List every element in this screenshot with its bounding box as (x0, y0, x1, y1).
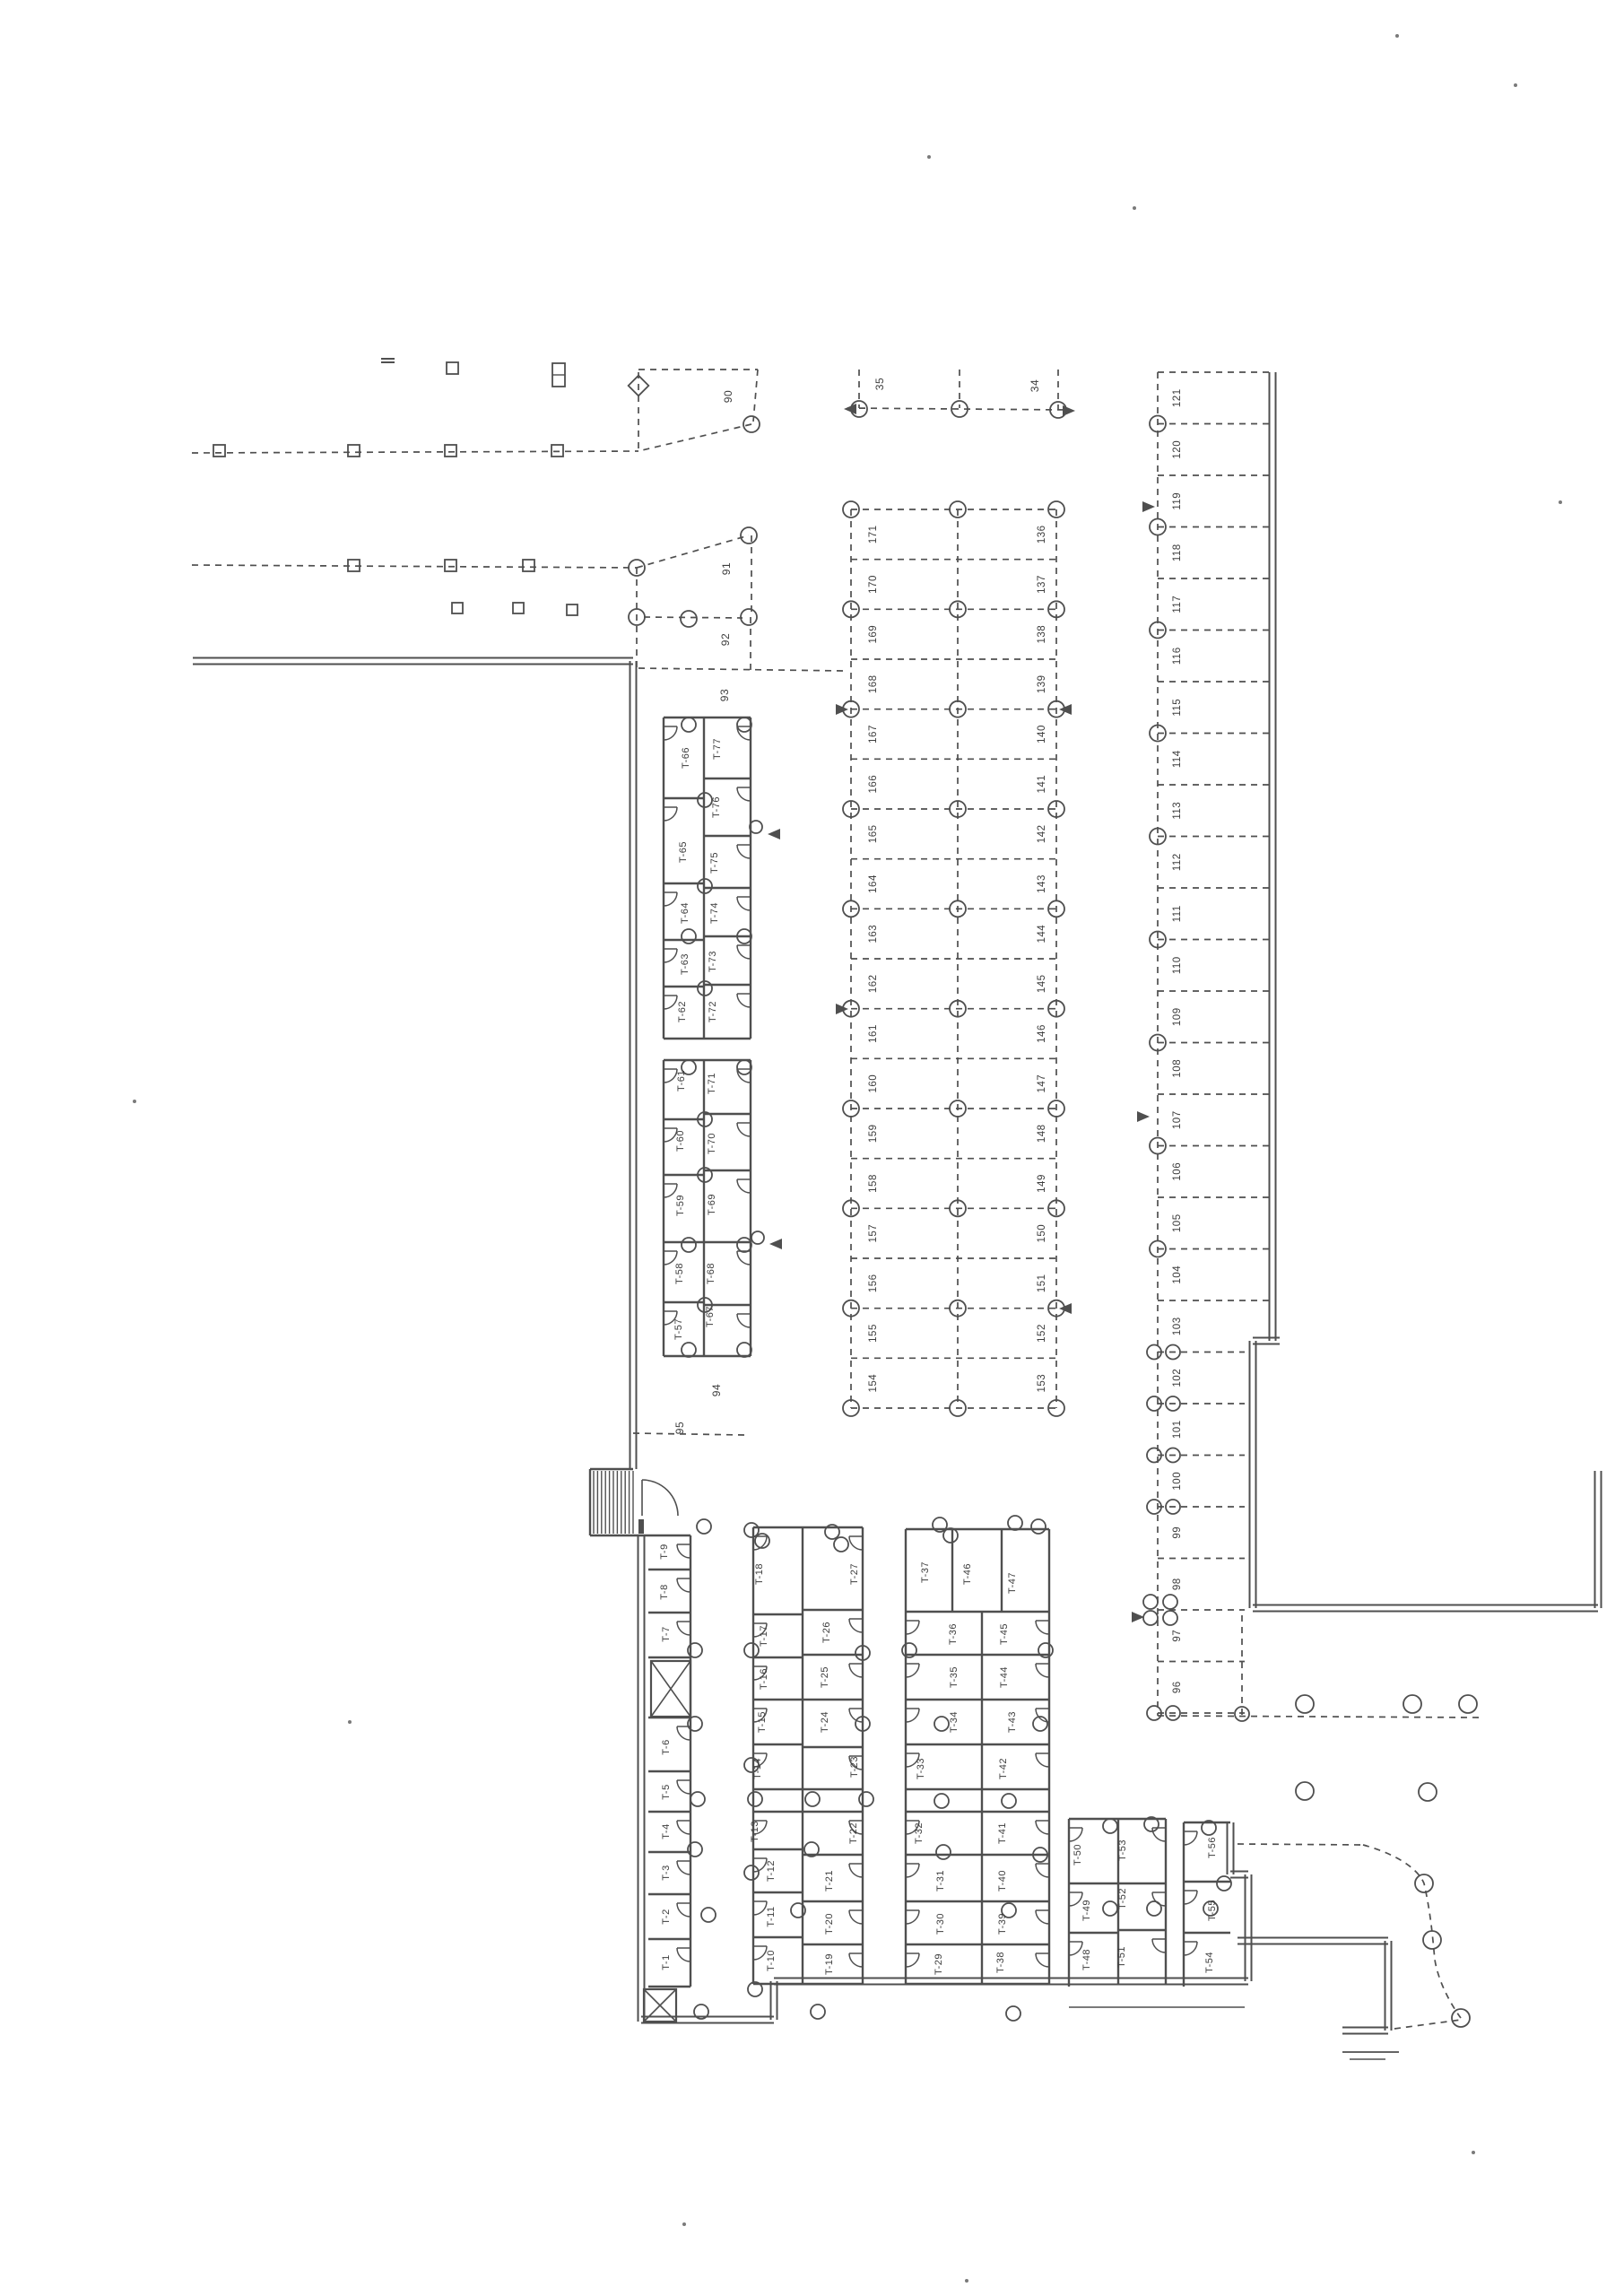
unit-label: T-73 (708, 951, 718, 972)
floor-plan-page: 1711701691681671661651641631621611601591… (0, 0, 1624, 2296)
stall-label: 98 (1172, 1578, 1183, 1590)
stall-label: 160 (868, 1074, 879, 1093)
stall-label: 157 (868, 1224, 879, 1243)
door-swing-icon (1036, 1753, 1049, 1767)
column-circle (737, 1060, 751, 1074)
stall-label: 165 (868, 824, 879, 843)
door-swing-icon (906, 1664, 919, 1677)
unit-label: T-33 (916, 1758, 926, 1779)
unit-label: T-65 (678, 841, 689, 863)
unit-label: T-61 (676, 1070, 687, 1091)
door-swing-icon (737, 945, 751, 959)
door-swing-icon (906, 1864, 919, 1877)
area-label: 34 (1029, 379, 1041, 392)
stall-label: 161 (868, 1024, 879, 1043)
stall-label: 154 (868, 1374, 879, 1393)
stall-label: 111 (1172, 905, 1183, 922)
door-swing-icon (1184, 1891, 1197, 1904)
unit-label: T-60 (675, 1130, 686, 1152)
unit-label: T-66 (681, 747, 691, 769)
unit-label: T-5 (661, 1784, 672, 1799)
column-square (551, 445, 563, 457)
column-circle (1459, 1695, 1477, 1713)
door-swing-icon (677, 1726, 690, 1740)
column-circle (748, 1792, 762, 1806)
column-circle (811, 2005, 825, 2019)
door-swing-icon (737, 787, 751, 801)
stall-label: 148 (1037, 1124, 1047, 1143)
stall-label: 169 (868, 625, 879, 644)
column-square (513, 603, 524, 613)
stall-label: 119 (1172, 492, 1183, 510)
scan-speck (1514, 83, 1517, 87)
column-circle (690, 1792, 705, 1806)
column-square (213, 445, 225, 457)
stall-label: 150 (1037, 1224, 1047, 1243)
unit-label: T-58 (674, 1263, 685, 1284)
unit-label: T-38 (995, 1952, 1006, 1973)
area-label: 35 (873, 378, 886, 390)
scan-speck (133, 1100, 136, 1103)
unit-label: T-19 (824, 1953, 835, 1975)
unit-label: T-77 (712, 738, 723, 760)
unit-label: T-14 (752, 1758, 763, 1779)
unit-label: T-24 (820, 1711, 830, 1733)
column-circle (737, 1343, 751, 1357)
door-swing-icon (737, 1251, 751, 1265)
door-swing-icon (849, 1664, 863, 1677)
direction-marker-icon (1142, 501, 1155, 512)
door-swing-icon (849, 1910, 863, 1924)
door-swing-icon (1036, 1821, 1049, 1834)
door-swing-icon (677, 1821, 690, 1834)
door-swing-icon (677, 1903, 690, 1917)
unit-label: T-25 (820, 1666, 830, 1688)
door-swing-icon (1036, 1664, 1049, 1677)
stall-label: 99 (1172, 1526, 1183, 1539)
unit-label: T-4 (661, 1823, 672, 1839)
unit-label: T-31 (935, 1870, 946, 1892)
door-swing-icon (1036, 1621, 1049, 1634)
stall-label: 139 (1037, 674, 1047, 693)
stall-label: 117 (1172, 596, 1183, 613)
door-swing-icon (1069, 1892, 1082, 1906)
direction-marker-icon (1063, 405, 1075, 416)
unit-label: T-13 (750, 1821, 760, 1842)
stall-label: 120 (1172, 440, 1183, 459)
column-square (445, 445, 456, 457)
unit-label: T-59 (675, 1195, 686, 1216)
column-circle (1147, 1901, 1161, 1916)
column-square (523, 560, 534, 571)
door-swing-icon (1069, 1828, 1082, 1841)
unit-label: T-70 (707, 1133, 717, 1154)
direction-marker-icon (1059, 704, 1072, 715)
unit-label: T-63 (680, 953, 690, 975)
column-circle (1006, 2006, 1020, 2021)
unit-label: T-41 (997, 1822, 1008, 1844)
unit-label: T-46 (962, 1563, 973, 1585)
stall-label: 112 (1172, 853, 1183, 871)
door-swing-icon (677, 1861, 690, 1874)
column-circle (1143, 1611, 1158, 1625)
direction-marker-icon (836, 1004, 848, 1014)
unit-label: T-6 (661, 1739, 672, 1754)
unit-label: T-26 (821, 1622, 832, 1643)
direction-marker-icon (1132, 1612, 1144, 1622)
door-swing-icon (642, 1480, 678, 1516)
column-circle (943, 1528, 958, 1543)
stall-label: 138 (1037, 625, 1047, 644)
dashed-line (1238, 1844, 1363, 1845)
column-circle (1217, 1876, 1231, 1891)
stall-label: 118 (1172, 544, 1183, 561)
door-swing-icon (677, 1578, 690, 1592)
door-swing-icon (849, 1953, 863, 1967)
dashed-line (847, 408, 1069, 410)
stall-label: 158 (868, 1174, 879, 1193)
column-circle (744, 1523, 759, 1537)
stall-label: 143 (1037, 874, 1047, 893)
door-swing-icon (1036, 1910, 1049, 1924)
stall-label: 105 (1172, 1213, 1183, 1232)
stall-label: 162 (868, 974, 879, 993)
stall-label: 137 (1037, 575, 1047, 594)
area-label: 92 (719, 633, 732, 646)
stall-label: 121 (1172, 388, 1183, 407)
stall-label: 102 (1172, 1369, 1183, 1387)
stall-label: 156 (868, 1274, 879, 1292)
unit-label: T-2 (661, 1909, 672, 1924)
unit-label: T-69 (707, 1194, 717, 1215)
unit-label: T-40 (997, 1870, 1008, 1892)
unit-label: T-49 (1081, 1900, 1092, 1921)
column-circle (741, 609, 757, 625)
column-square (445, 560, 456, 571)
unit-label: T-43 (1007, 1711, 1018, 1733)
unit-label: T-21 (824, 1870, 835, 1892)
unit-label: T-16 (759, 1668, 769, 1690)
direction-marker-icon (836, 704, 848, 715)
unit-label: T-54 (1204, 1952, 1215, 1973)
column-circle (744, 1865, 759, 1880)
column-circle (701, 1908, 716, 1922)
stall-label: 101 (1172, 1420, 1183, 1439)
unit-label: T-35 (949, 1666, 960, 1688)
unit-label: T-42 (998, 1758, 1009, 1779)
door-swing-icon (737, 994, 751, 1007)
stall-label: 115 (1172, 699, 1183, 717)
dashed-line (644, 617, 743, 618)
unit-label: T-76 (711, 796, 722, 818)
door-swing-icon (737, 897, 751, 910)
scan-speck (682, 2222, 686, 2226)
scan-speck (1472, 2151, 1475, 2154)
column-circle (737, 1238, 751, 1252)
column-circle (697, 1519, 711, 1534)
door-swing-icon (906, 1910, 919, 1924)
unit-label: T-36 (948, 1623, 959, 1645)
stall-label: 141 (1037, 775, 1047, 794)
column-circle (1103, 1819, 1117, 1833)
unit-label: T-51 (1116, 1946, 1127, 1968)
stall-label: 96 (1172, 1681, 1183, 1693)
column-circle (1103, 1901, 1117, 1916)
door-swing-icon (677, 1948, 690, 1961)
unit-label: T-53 (1117, 1839, 1128, 1861)
stall-label: 109 (1172, 1007, 1183, 1026)
unit-label: T-23 (849, 1756, 860, 1778)
stall-label: 147 (1037, 1074, 1047, 1093)
dashed-line (192, 451, 638, 453)
direction-marker-icon (1059, 1303, 1072, 1314)
stall-label: 159 (868, 1124, 879, 1143)
door-swing-icon (1069, 1942, 1082, 1955)
stall-label: 145 (1037, 974, 1047, 993)
scan-speck (965, 2279, 968, 2283)
stall-label: 149 (1037, 1174, 1047, 1193)
column-circle (1002, 1794, 1016, 1808)
door-swing-icon (664, 949, 677, 962)
door-leaf-icon (638, 1519, 644, 1534)
unit-label: T-30 (935, 1913, 946, 1935)
column-square (567, 604, 578, 615)
unit-label: T-12 (766, 1860, 777, 1882)
unit-label: T-64 (680, 902, 690, 924)
stall-label: 171 (868, 525, 879, 544)
column-circle (934, 1794, 949, 1808)
unit-label: T-3 (661, 1865, 672, 1880)
unit-label: T-72 (708, 1001, 718, 1022)
unit-label: T-57 (673, 1318, 684, 1340)
dashed-line (192, 565, 637, 568)
unit-label: T-68 (706, 1263, 716, 1284)
unit-label: T-20 (824, 1913, 835, 1935)
door-swing-icon (677, 1780, 690, 1794)
unit-label: T-8 (659, 1584, 670, 1599)
column-circle (859, 1792, 873, 1806)
unit-label: T-37 (920, 1561, 931, 1583)
direction-marker-icon (768, 829, 780, 839)
stall-label: 113 (1172, 802, 1183, 820)
column-circle (936, 1845, 951, 1859)
unit-label: T-9 (659, 1544, 670, 1559)
door-swing-icon (677, 1544, 690, 1558)
column-circle (1031, 1519, 1046, 1534)
column-circle (682, 1238, 696, 1252)
column-circle (751, 1231, 764, 1244)
dashed-line (633, 1433, 744, 1435)
unit-label: T-32 (914, 1822, 925, 1844)
door-swing-icon (1152, 1939, 1166, 1952)
stall-label: 114 (1172, 750, 1183, 768)
door-swing-icon (849, 1864, 863, 1877)
stall-label: 97 (1172, 1630, 1183, 1642)
stall-label: 163 (868, 925, 879, 944)
column-circle (737, 717, 751, 732)
door-swing-icon (906, 1953, 919, 1967)
stall-label: 136 (1037, 525, 1047, 544)
column-circle (682, 717, 696, 732)
door-swing-icon (753, 1901, 767, 1915)
scan-speck (927, 155, 931, 159)
column-circle (682, 1343, 696, 1357)
unit-label: T-29 (934, 1953, 944, 1975)
stall-label: 152 (1037, 1324, 1047, 1343)
door-swing-icon (1036, 1864, 1049, 1877)
door-swing-icon (1036, 1953, 1049, 1967)
unit-label: T-22 (848, 1822, 859, 1844)
stall-label: 108 (1172, 1059, 1183, 1078)
door-swing-icon (906, 1621, 919, 1634)
door-swing-icon (737, 1123, 751, 1136)
area-label: 90 (722, 390, 734, 403)
stall-label: 104 (1172, 1265, 1183, 1284)
unit-label: T-62 (677, 1001, 688, 1022)
column-circle (744, 1643, 759, 1657)
stall-label: 140 (1037, 725, 1047, 744)
stall-label: 167 (868, 725, 879, 744)
stall-label: 146 (1037, 1024, 1047, 1043)
column-circle (1403, 1695, 1421, 1713)
door-swing-icon (1152, 1828, 1166, 1841)
unit-label: T-55 (1207, 1900, 1218, 1921)
scan-speck (1133, 206, 1136, 210)
unit-label: T-34 (949, 1711, 960, 1733)
door-swing-icon (849, 1619, 863, 1632)
stall-label: 116 (1172, 647, 1183, 665)
door-swing-icon (1184, 1831, 1197, 1845)
site-boundary-dashed (1363, 1845, 1461, 2018)
stall-label: 166 (868, 775, 879, 794)
door-swing-icon (664, 726, 677, 740)
direction-marker-icon (844, 404, 856, 414)
column-square (452, 603, 463, 613)
dashed-line (638, 668, 843, 671)
door-swing-icon (753, 1858, 767, 1872)
door-swing-icon (664, 996, 677, 1009)
unit-label: T-39 (997, 1913, 1008, 1935)
unit-label: T-10 (766, 1950, 777, 1971)
stall-label: 155 (868, 1324, 879, 1343)
unit-label: T-75 (709, 852, 720, 874)
dashed-line (753, 370, 758, 422)
column-square (348, 445, 360, 457)
column-circle (1163, 1611, 1177, 1625)
column-circle (1296, 1695, 1314, 1713)
area-label: 94 (710, 1384, 723, 1396)
door-swing-icon (737, 1179, 751, 1193)
door-swing-icon (849, 1536, 863, 1550)
unit-label: T-15 (757, 1711, 768, 1733)
direction-marker-icon (769, 1239, 782, 1249)
unit-label: T-11 (766, 1906, 777, 1926)
door-swing-icon (1184, 1942, 1197, 1955)
area-label: 95 (673, 1422, 686, 1434)
stall-label: 142 (1037, 824, 1047, 843)
door-swing-icon (737, 845, 751, 858)
area-label: 91 (720, 562, 733, 575)
column-circle (1008, 1516, 1022, 1530)
unit-label: T-18 (754, 1563, 765, 1585)
column-circle (1163, 1595, 1177, 1609)
unit-label: T-17 (759, 1625, 769, 1647)
column-circle (834, 1537, 848, 1552)
column-circle (682, 929, 696, 944)
stall-label: 106 (1172, 1162, 1183, 1181)
scan-speck (1395, 34, 1399, 38)
column-circle (805, 1792, 820, 1806)
column-circle (1423, 1931, 1441, 1949)
column-circle (681, 611, 697, 627)
stall-label: 103 (1172, 1317, 1183, 1335)
floor-plan-canvas: 1711701691681671661651641631621611601591… (0, 0, 1624, 2296)
stall-label: 144 (1037, 925, 1047, 944)
stall-label: 100 (1172, 1472, 1183, 1491)
direction-marker-icon (1137, 1111, 1150, 1122)
door-swing-icon (664, 892, 677, 906)
stall-label: 153 (1037, 1374, 1047, 1393)
unit-label: T-74 (709, 902, 720, 924)
door-swing-icon (753, 1946, 767, 1960)
stall-label: 151 (1037, 1274, 1047, 1292)
stall-label: 110 (1172, 956, 1183, 974)
unit-label: T-27 (849, 1563, 860, 1585)
unit-label: T-48 (1081, 1949, 1092, 1970)
stall-label: 164 (868, 874, 879, 893)
stall-label: 168 (868, 674, 879, 693)
column-circle (1143, 1595, 1158, 1609)
column-circle (1296, 1782, 1314, 1800)
unit-label: T-44 (999, 1666, 1010, 1688)
column-circle (1419, 1783, 1437, 1801)
unit-label: T-50 (1073, 1844, 1083, 1865)
dashed-line (1394, 2020, 1461, 2029)
dashed-line (1158, 1716, 1480, 1718)
unit-label: T-1 (661, 1954, 672, 1970)
unit-label: T-52 (1117, 1888, 1128, 1909)
door-swing-icon (737, 1314, 751, 1327)
scan-speck (1559, 500, 1562, 504)
door-swing-icon (664, 1251, 677, 1265)
column-circle (934, 1717, 949, 1731)
stall-label: 107 (1172, 1110, 1183, 1129)
unit-label: T-56 (1207, 1837, 1218, 1858)
door-swing-icon (664, 807, 677, 821)
unit-label: T-45 (999, 1623, 1010, 1645)
area-label: 93 (718, 689, 731, 701)
unit-label: T-7 (661, 1626, 672, 1641)
door-swing-icon (664, 1069, 677, 1083)
door-swing-icon (677, 1622, 690, 1635)
dashed-line (638, 424, 751, 451)
unit-label: T-71 (707, 1073, 717, 1094)
column-square (447, 362, 458, 374)
unit-label: T-47 (1007, 1572, 1018, 1594)
scan-speck (348, 1720, 352, 1724)
stall-label: 170 (868, 575, 879, 594)
unit-label: T-67 (705, 1306, 716, 1327)
door-swing-icon (906, 1709, 919, 1722)
